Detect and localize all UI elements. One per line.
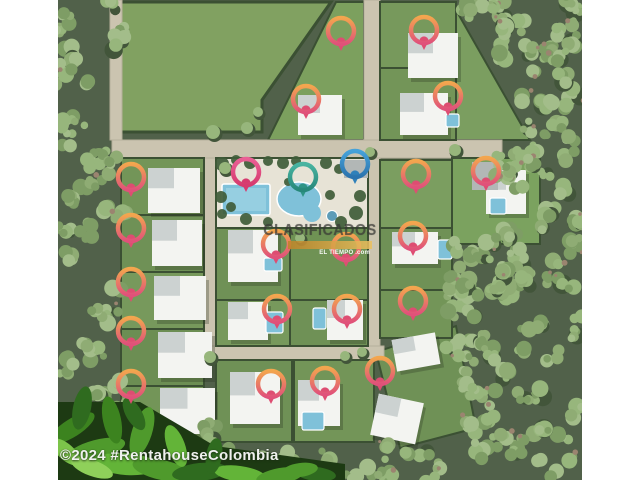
road [368, 158, 380, 346]
house [152, 220, 205, 270]
tree [449, 144, 461, 156]
listing-photo: CLASIFICADOS EL TIEMPO .com ©2024 #Renta… [0, 0, 640, 480]
road [204, 158, 216, 354]
palm-tree [320, 157, 332, 169]
private-pool [302, 412, 324, 430]
private-pool [446, 114, 459, 127]
white-margin-right [582, 0, 640, 480]
palm-tree [217, 209, 227, 219]
palm-tree [263, 217, 273, 227]
road [364, 0, 380, 140]
house [400, 93, 451, 139]
palm-tree [354, 190, 366, 202]
tree [219, 162, 231, 174]
aerial-scene [0, 0, 640, 480]
tree [241, 122, 253, 134]
tree [206, 125, 220, 139]
tree [204, 351, 216, 363]
palm-tree [240, 213, 252, 225]
palm-tree [335, 216, 347, 228]
palm-tree [263, 156, 273, 166]
palm-tree [325, 190, 335, 200]
palm-tree [226, 202, 236, 212]
road [204, 346, 384, 360]
house [154, 276, 209, 324]
tree [295, 233, 305, 243]
tree [340, 351, 350, 361]
palm-tree [215, 191, 227, 203]
palm-tree [277, 157, 289, 169]
palm-tree [349, 206, 363, 220]
private-pool [313, 308, 326, 329]
private-pool [264, 258, 282, 271]
white-margin-left [0, 0, 58, 480]
house [148, 168, 203, 217]
road [110, 0, 122, 140]
tree [357, 347, 367, 357]
tree [253, 107, 263, 117]
private-pool [490, 198, 506, 214]
road [112, 140, 502, 158]
